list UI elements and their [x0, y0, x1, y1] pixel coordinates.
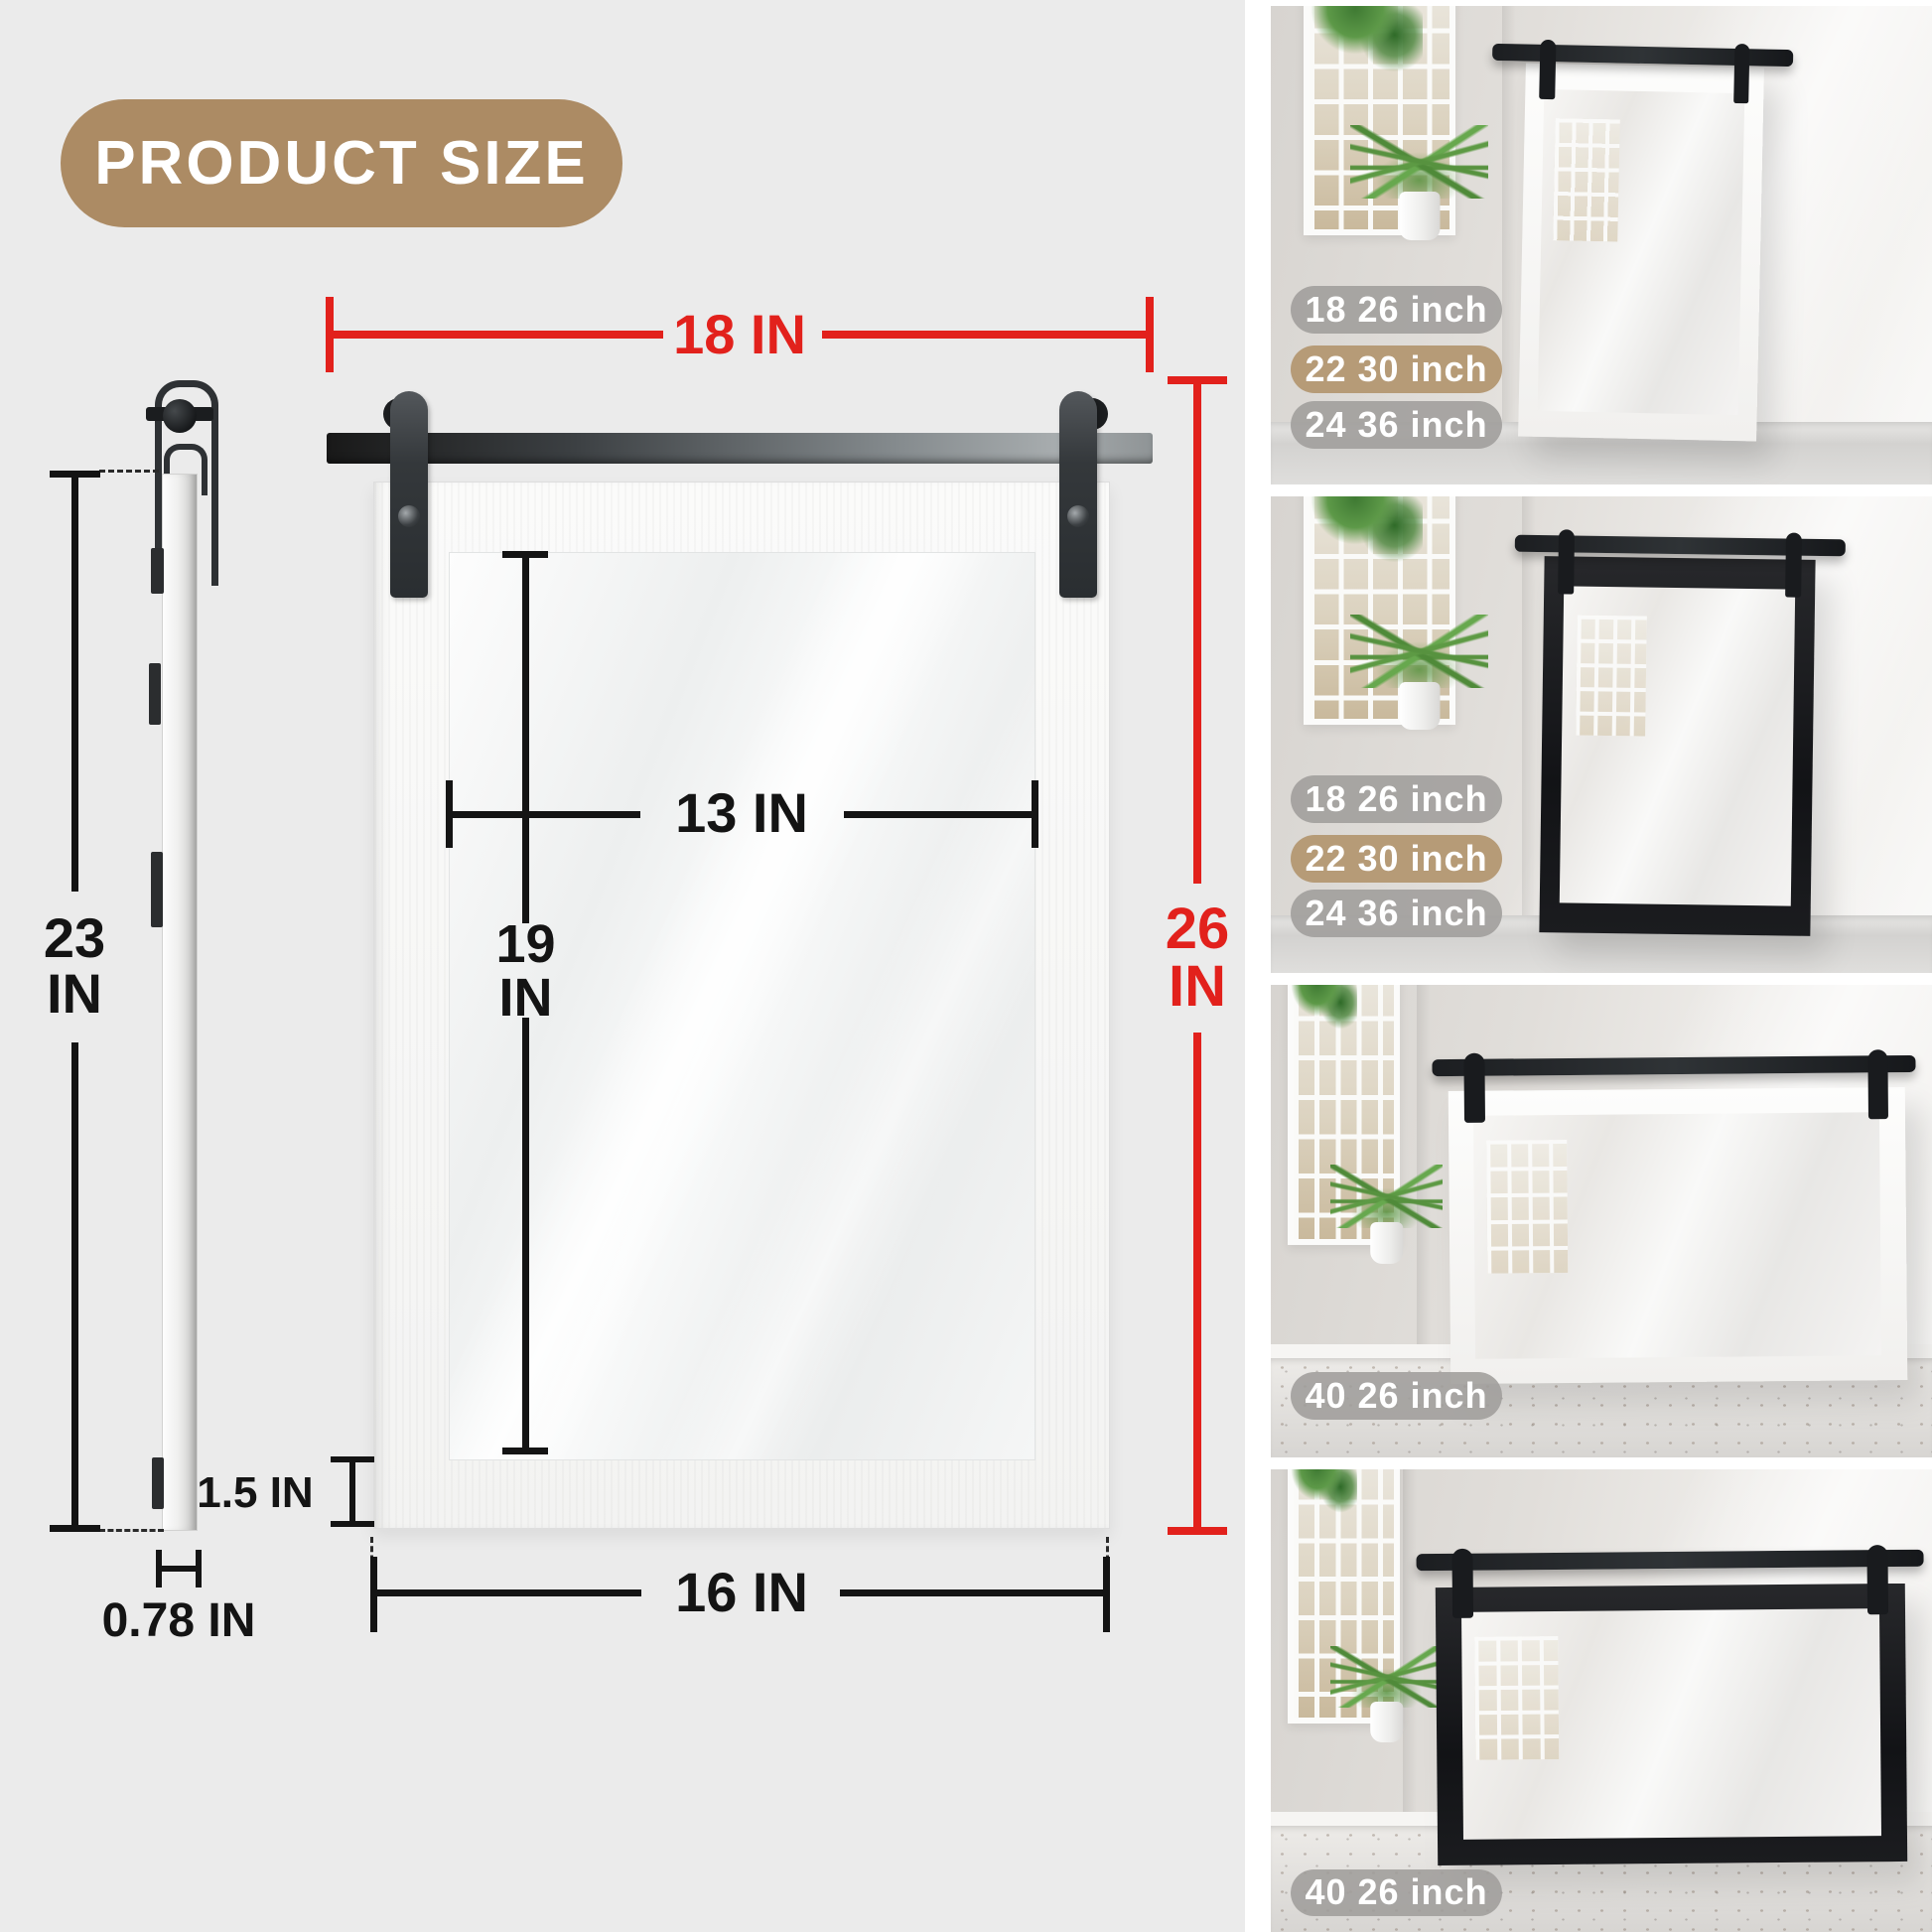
dim-1-5in-line: [349, 1462, 355, 1521]
plant-pot: [1370, 1702, 1404, 1742]
wall-corner: [1502, 6, 1516, 484]
mirror-strap-right: [1867, 1049, 1888, 1120]
side-view-clip: [152, 1457, 164, 1509]
mirror-strap-right: [1785, 533, 1802, 598]
dim-19in-line-top: [522, 558, 529, 923]
glass-window-reflection: [1473, 1636, 1558, 1760]
dim-23in-unit: IN: [47, 966, 102, 1022]
dim-16in-line-right: [840, 1589, 1110, 1596]
dim-23in-top-extension: [99, 470, 159, 473]
product-mirror-white-wide: [1449, 1087, 1907, 1384]
dim-23in-bottom-extension: [99, 1529, 164, 1532]
gallery-photo-black-portrait: 18 26 inch 22 30 inch 24 36 inch: [1271, 496, 1932, 973]
mirror-strap-left: [1463, 1052, 1484, 1123]
plant-leaves: [1330, 1646, 1444, 1708]
dim-26in-top-tick: [1168, 376, 1227, 384]
gallery-photo-black-landscape: 40 26 inch: [1271, 1469, 1932, 1932]
dim-0-78in-label: 0.78 IN: [77, 1593, 280, 1649]
plant-foliage: [1311, 6, 1423, 82]
mirror-strap-left: [1558, 530, 1575, 595]
size-badge: 18 26 inch: [1291, 775, 1502, 823]
mirror-glass: [1538, 89, 1744, 414]
dim-18in-label: 18 IN: [625, 298, 854, 371]
potted-plant: [1357, 1654, 1417, 1742]
dim-19in-line-bottom: [522, 1018, 529, 1448]
potted-plant: [1383, 625, 1455, 731]
size-badge: 40 26 inch: [1291, 1869, 1502, 1916]
plant-foliage: [1311, 496, 1423, 573]
potted-plant: [1357, 1173, 1417, 1263]
plant-foliage: [1291, 1469, 1357, 1520]
mirror-strap-left: [1540, 40, 1557, 99]
mirror-strap-right: [1733, 44, 1750, 103]
dim-19in-bottom-tick: [502, 1448, 548, 1454]
dim-18in-line-right: [822, 331, 1150, 339]
mirror-strap-left: [1450, 1548, 1472, 1617]
barn-door-rail: [327, 433, 1153, 464]
product-mirror-black: [1539, 557, 1815, 937]
dim-23in-value: 23: [44, 910, 105, 966]
gallery-photo-white-landscape: 40 26 inch: [1271, 985, 1932, 1457]
strap-screw: [1067, 505, 1089, 527]
plant-leaves: [1350, 125, 1488, 199]
dim-19in-unit: IN: [499, 971, 553, 1025]
glass-window-reflection: [1577, 616, 1647, 737]
dim-26in-value: 26: [1166, 900, 1230, 958]
dim-16in-label: 16 IN: [618, 1557, 866, 1628]
dim-26in-line-top: [1193, 384, 1201, 884]
product-mirror-white: [1518, 64, 1764, 442]
strap-screw: [398, 505, 420, 527]
dim-19in-value: 19: [495, 917, 555, 971]
mirror-strap-right: [1866, 1544, 1888, 1613]
plant-leaves: [1350, 615, 1488, 688]
plant-pot: [1370, 1222, 1404, 1264]
dim-13in-line-right: [844, 811, 1035, 818]
product-size-infographic: PRODUCT SIZE 18 IN 26 IN 13 IN 19 IN: [0, 0, 1932, 1932]
left-hanger-strap: [390, 391, 428, 598]
product-size-title-badge: PRODUCT SIZE: [61, 99, 622, 227]
dim-19in-label: 19 IN: [464, 915, 588, 1027]
gallery-photo-white-portrait: 18 26 inch 22 30 inch 24 36 inch: [1271, 6, 1932, 484]
plant-foliage: [1291, 985, 1357, 1036]
mirror-glass: [1461, 1608, 1881, 1840]
dim-1-5in-label: 1.5 IN: [185, 1467, 326, 1519]
size-badge: 40 26 inch: [1291, 1372, 1502, 1420]
wall-corner: [1522, 496, 1536, 973]
side-view-clip: [151, 548, 164, 594]
product-size-title-label: PRODUCT SIZE: [94, 128, 589, 199]
dim-26in-label: 26 IN: [1133, 898, 1262, 1018]
dim-26in-line-bottom: [1193, 1033, 1201, 1527]
side-view-roller-wheel: [163, 399, 197, 433]
dim-23in-label: 23 IN: [15, 908, 134, 1023]
plant-pot: [1399, 682, 1440, 731]
potted-plant: [1383, 135, 1455, 240]
size-badge: 24 36 inch: [1291, 890, 1502, 937]
dim-16in-line-left: [373, 1589, 641, 1596]
size-badge: 24 36 inch: [1291, 401, 1502, 449]
glass-window-reflection: [1554, 119, 1620, 242]
dim-26in-unit: IN: [1169, 958, 1226, 1016]
side-view-clip: [149, 663, 161, 725]
dim-13in-label: 13 IN: [618, 777, 866, 849]
right-hanger-strap: [1059, 391, 1097, 598]
mirror-glass: [1560, 587, 1795, 906]
glass-window-reflection: [1485, 1139, 1568, 1273]
dim-1-5in-bottom-tick: [331, 1521, 374, 1527]
side-view-mirror-edge: [162, 474, 198, 1531]
size-badge-highlighted: 22 30 inch: [1291, 345, 1502, 393]
dim-23in-line-top: [71, 478, 78, 892]
dim-19in-top-tick: [502, 551, 548, 558]
plant-pot: [1399, 192, 1440, 240]
dim-13in-line-left: [449, 811, 640, 818]
product-mirror-black-wide: [1435, 1583, 1906, 1864]
dim-18in-line-left: [330, 331, 663, 339]
size-badge-highlighted: 22 30 inch: [1291, 835, 1502, 883]
dim-0-78in-line: [160, 1566, 198, 1572]
dim-26in-bottom-tick: [1168, 1527, 1227, 1535]
side-view-clip: [151, 852, 163, 927]
dim-23in-line-bottom: [71, 1042, 78, 1525]
size-badge: 18 26 inch: [1291, 286, 1502, 334]
mirror-glass: [1473, 1112, 1881, 1358]
dim-23in-bottom-tick: [50, 1525, 100, 1532]
dim-23in-top-tick: [50, 471, 100, 478]
plant-leaves: [1330, 1165, 1444, 1227]
